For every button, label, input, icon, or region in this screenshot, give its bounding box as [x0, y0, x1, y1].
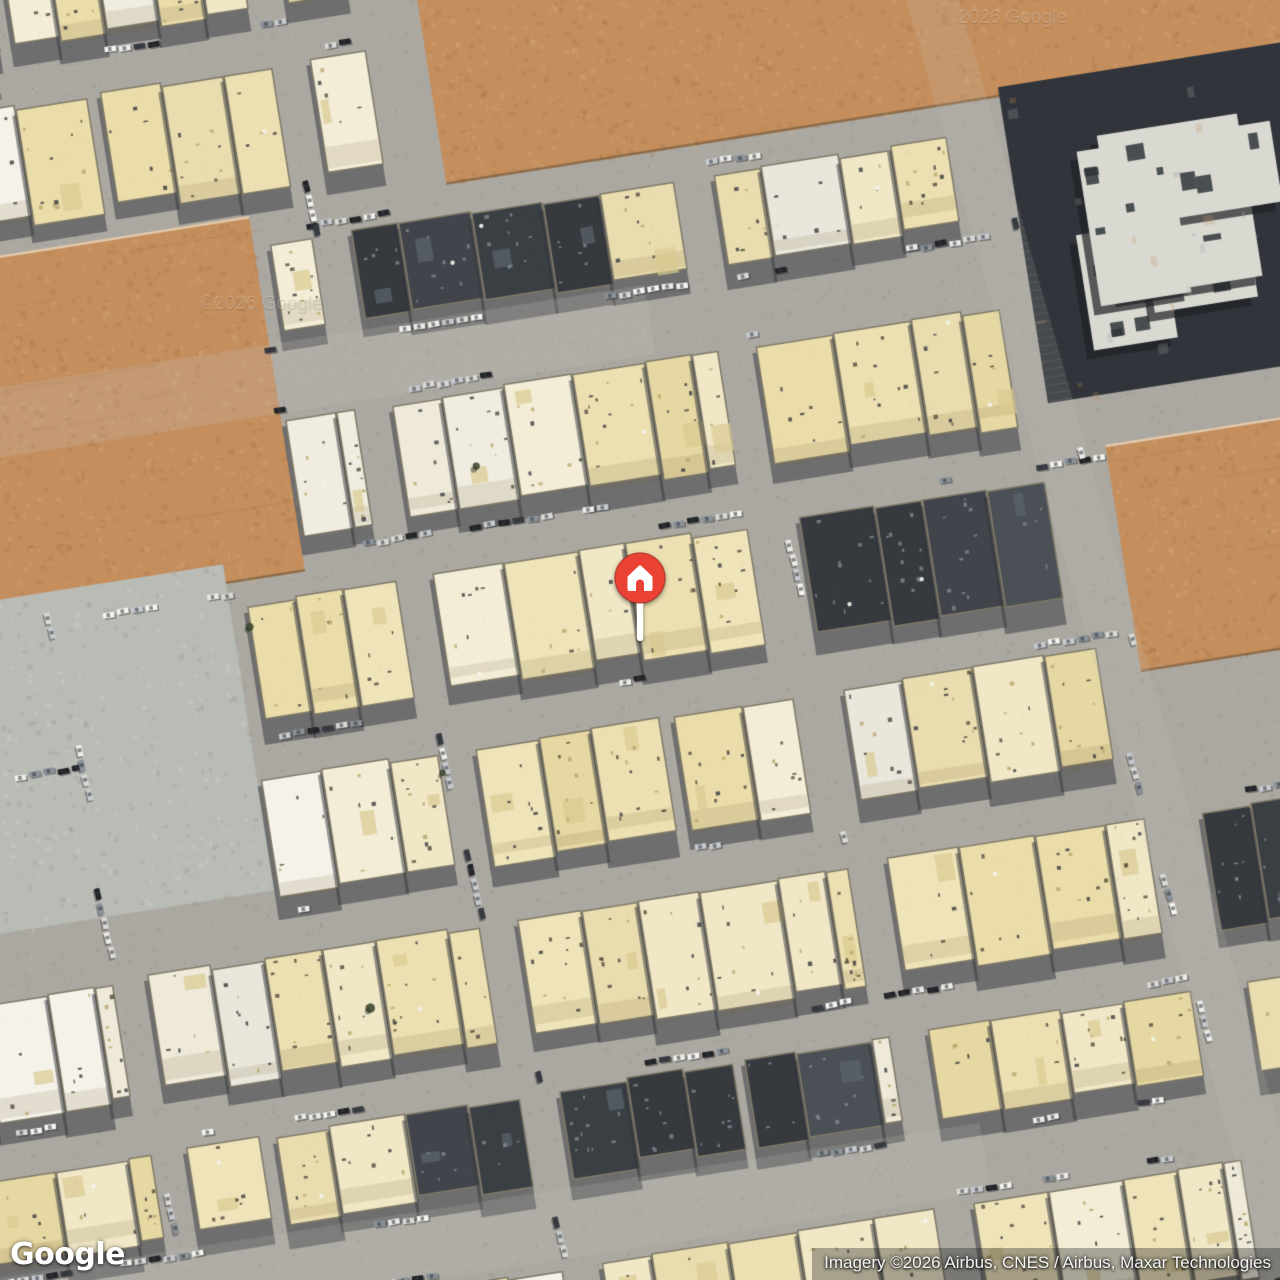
google-logo[interactable]: Google [10, 1237, 125, 1272]
location-marker[interactable] [610, 551, 670, 661]
map-viewport[interactable]: ©2026 Google 2026 Google Google Imagery … [0, 0, 1280, 1280]
map-pin-icon [610, 551, 670, 661]
home-door [636, 580, 644, 592]
imagery-attribution: Imagery ©2026 Airbus, CNES / Airbus, Max… [812, 1248, 1280, 1280]
